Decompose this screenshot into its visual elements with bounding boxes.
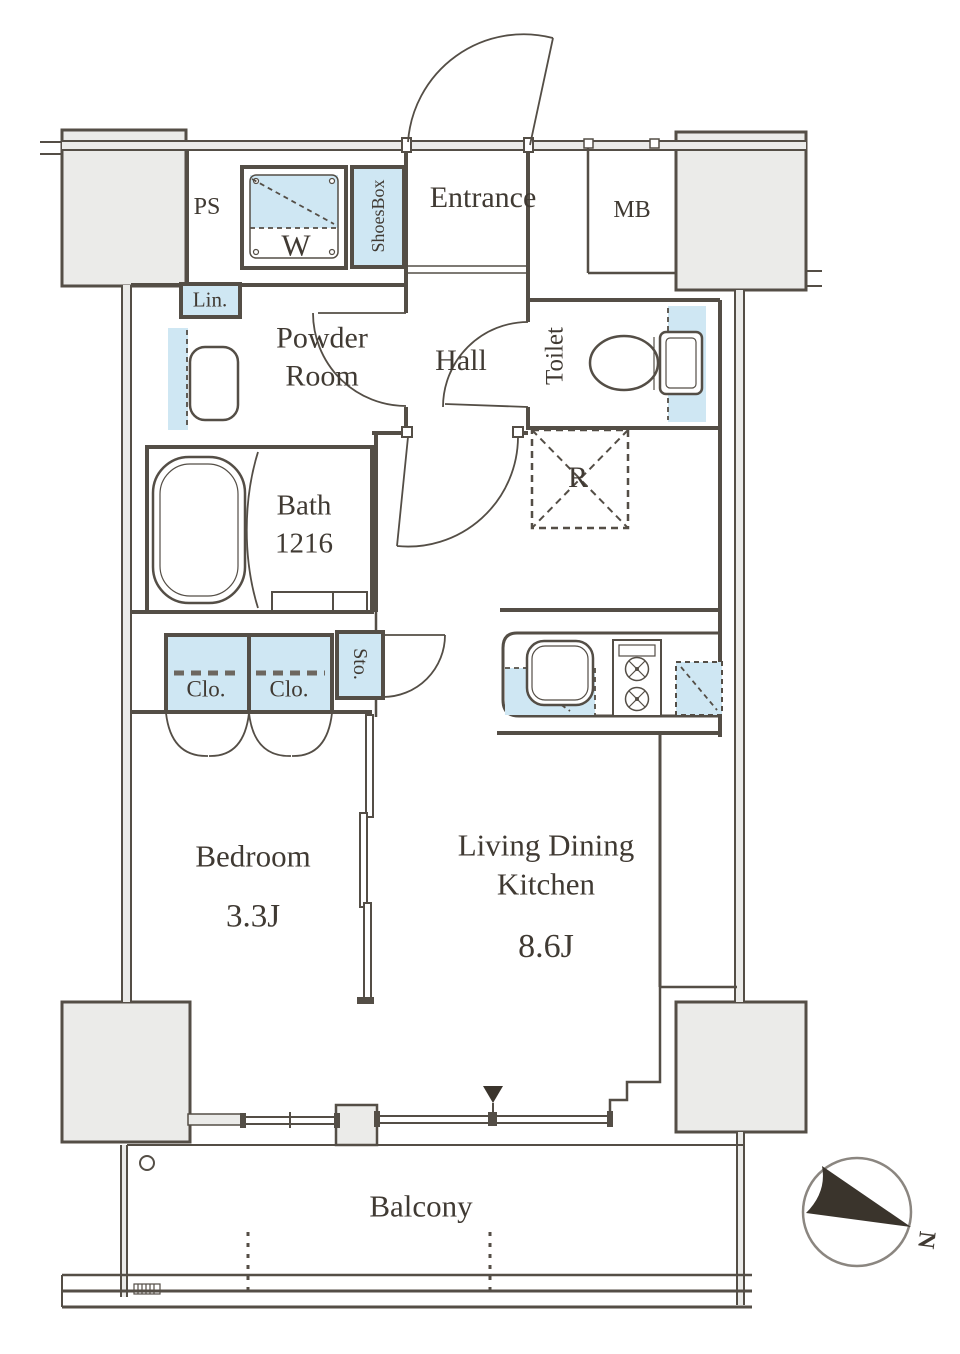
washing-machine-label: W [281, 230, 310, 261]
powder-room-label-line2: Room [276, 357, 368, 395]
washbasin [168, 328, 238, 430]
kitchen-fixtures [503, 633, 722, 716]
balcony-label: Balcony [369, 1191, 472, 1222]
ldk-size-label: 8.6J [518, 930, 574, 964]
drain-icon [140, 1156, 154, 1170]
bath-label-name: Bath [275, 487, 333, 525]
ldk-label-line1: Living Dining [458, 830, 635, 861]
bath-label: Bath 1216 [275, 487, 333, 562]
compass-north-label: N [913, 1230, 939, 1250]
structural-columns [40, 130, 822, 1142]
shoes-box-label: ShoesBox [369, 179, 387, 252]
toilet-label: Toilet [543, 327, 568, 385]
bedroom-label: Bedroom [195, 841, 310, 872]
balcony-drawing [62, 1145, 752, 1307]
closet-1-label: Clo. [187, 678, 226, 701]
linen-label: Lin. [193, 290, 227, 311]
window-direction-marker [483, 1086, 503, 1103]
storage-label: Sto. [350, 648, 370, 680]
bath-label-size: 1216 [275, 525, 333, 563]
bedroom-size-label: 3.3J [226, 901, 280, 934]
sliding-partition [357, 715, 374, 1004]
floorplan: Entrance PS MB W ShoesBox Lin. Powder Ro… [0, 0, 960, 1354]
meter-box-label: MB [613, 198, 650, 222]
ldk-label-line2: Kitchen [497, 869, 595, 900]
powder-room-label: Powder Room [276, 320, 368, 395]
entrance-label: Entrance [430, 183, 537, 213]
refrigerator-label: R [568, 463, 588, 493]
hall-label: Hall [435, 346, 487, 376]
pipe-space-label: PS [194, 195, 221, 219]
closet-2-label: Clo. [270, 678, 309, 701]
toilet-fixture [590, 306, 706, 422]
powder-room-label-line1: Powder [276, 320, 368, 358]
windows [188, 1086, 613, 1145]
bath-fixtures [153, 457, 367, 611]
compass-north-icon [803, 1158, 911, 1266]
